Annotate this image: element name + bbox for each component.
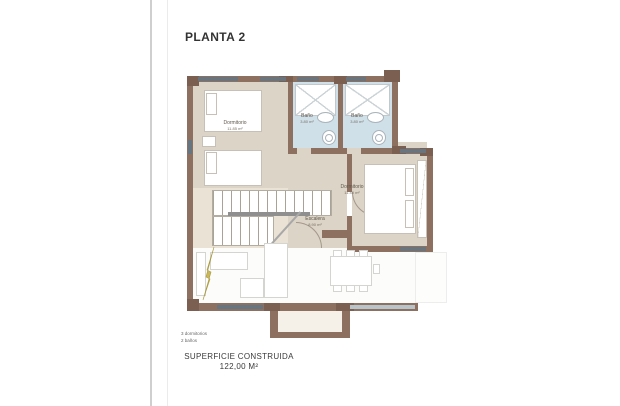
legend-bedrooms: 3 dormitorios [181, 331, 207, 338]
room-area: 3.80 m² [293, 119, 321, 124]
nightstand [202, 136, 216, 147]
legend-bathrooms: 2 baños [181, 338, 207, 345]
page-edge-line [150, 0, 152, 406]
terrace-outline [415, 252, 447, 303]
window [188, 140, 192, 154]
pillow [405, 200, 414, 228]
door-gap [297, 148, 311, 154]
pillow [206, 152, 217, 174]
balcony-wall [270, 332, 350, 338]
wall [187, 76, 193, 309]
shower [345, 84, 390, 116]
room-label-bano1: Baño 3.80 m² [293, 113, 321, 124]
window [400, 149, 426, 153]
room-count-legend: 3 dormitorios 2 baños [181, 331, 207, 345]
room-area: 8.90 m² [295, 222, 335, 227]
floorplan-page: PLANTA 2 [0, 0, 620, 406]
wardrobe [417, 160, 427, 238]
chair [333, 250, 342, 257]
built-area-value: 122,00 M² [159, 362, 319, 371]
window [217, 305, 263, 309]
room-area: 3.80 m² [343, 119, 371, 124]
image-edge-line [167, 0, 168, 406]
wall-post [264, 303, 280, 311]
kitchen-island [264, 243, 288, 298]
wall-post [384, 70, 400, 82]
pillow [405, 168, 414, 196]
wall [392, 76, 398, 154]
chair [359, 285, 368, 292]
chair [373, 264, 380, 274]
room-label-bano2: Baño 3.80 m² [343, 113, 371, 124]
chair [346, 250, 355, 257]
built-area-label: SUPERFICIE CONSTRUIDA [159, 352, 319, 361]
room-label-escalera: Escalera 8.90 m² [295, 216, 335, 227]
room-label-dormitorio2: Dormitorio 11.40 m² [332, 184, 372, 195]
toilet-bowl [375, 134, 383, 142]
window [346, 77, 366, 81]
built-area-footer: SUPERFICIE CONSTRUIDA 122,00 M² [159, 352, 319, 371]
window [260, 77, 286, 81]
toilet-bowl [325, 134, 333, 142]
window [297, 77, 319, 81]
chair [333, 285, 342, 292]
balcony-floor [278, 311, 342, 332]
kitchen-cabinet [240, 278, 264, 298]
door-gap [347, 148, 361, 154]
shower [295, 84, 336, 116]
page-title: PLANTA 2 [185, 30, 246, 44]
room-label-dormitorio1: Dormitorio 11.85 m² [205, 120, 265, 131]
window [198, 77, 238, 81]
stairs-lower-flight [212, 216, 274, 246]
room-area: 11.85 m² [205, 126, 265, 131]
pillow [206, 93, 217, 115]
room-area: 11.40 m² [332, 190, 372, 195]
window [400, 247, 426, 251]
wall [322, 230, 352, 238]
chair [346, 285, 355, 292]
chair [359, 250, 368, 257]
window [350, 305, 415, 309]
section-arrow-icon [200, 246, 220, 304]
dining-table [330, 256, 372, 286]
wall [427, 148, 433, 252]
wall-post [187, 299, 199, 311]
